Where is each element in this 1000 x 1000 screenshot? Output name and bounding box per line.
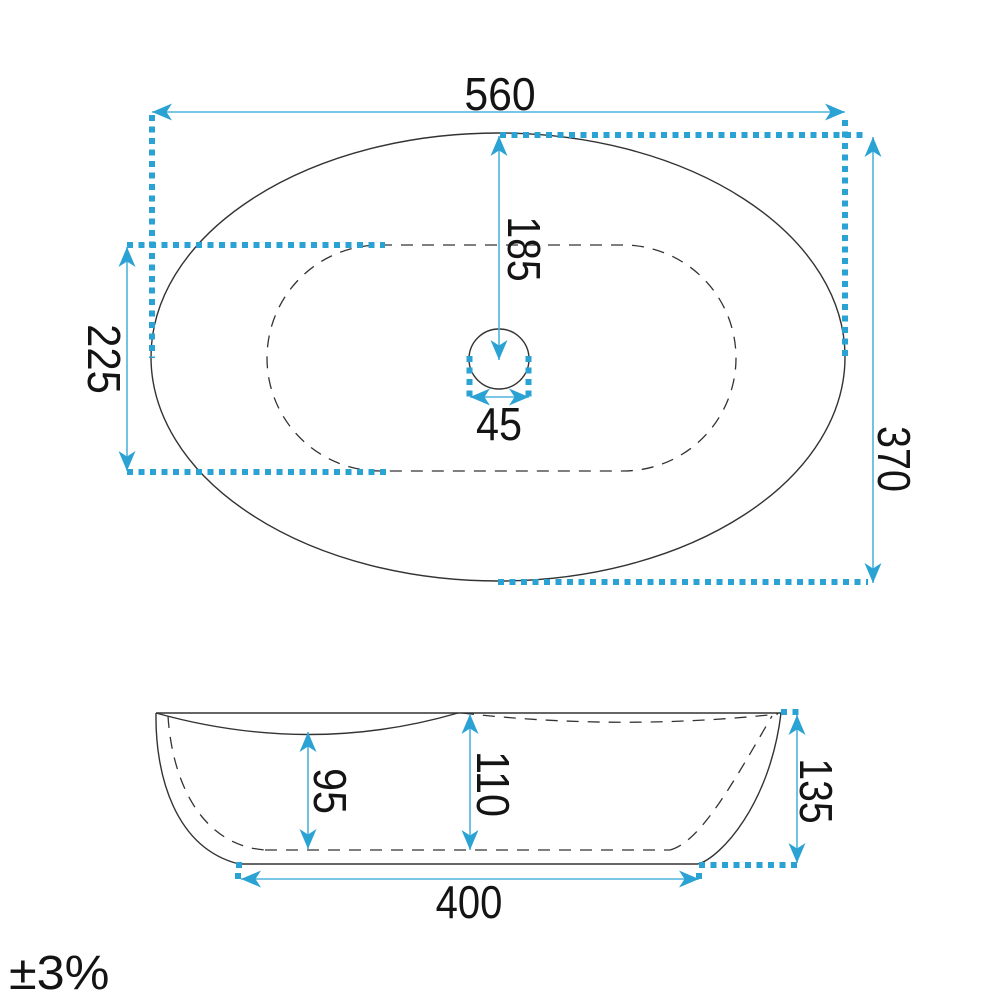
svg-text:370: 370 — [867, 426, 918, 492]
svg-text:±3%: ±3% — [9, 946, 109, 1000]
svg-text:45: 45 — [476, 399, 522, 451]
svg-text:400: 400 — [436, 877, 503, 928]
svg-text:560: 560 — [464, 70, 535, 121]
svg-text:225: 225 — [78, 324, 129, 394]
svg-text:135: 135 — [789, 758, 841, 823]
svg-text:185: 185 — [497, 216, 549, 281]
svg-text:95: 95 — [303, 768, 355, 814]
svg-text:110: 110 — [466, 751, 518, 817]
